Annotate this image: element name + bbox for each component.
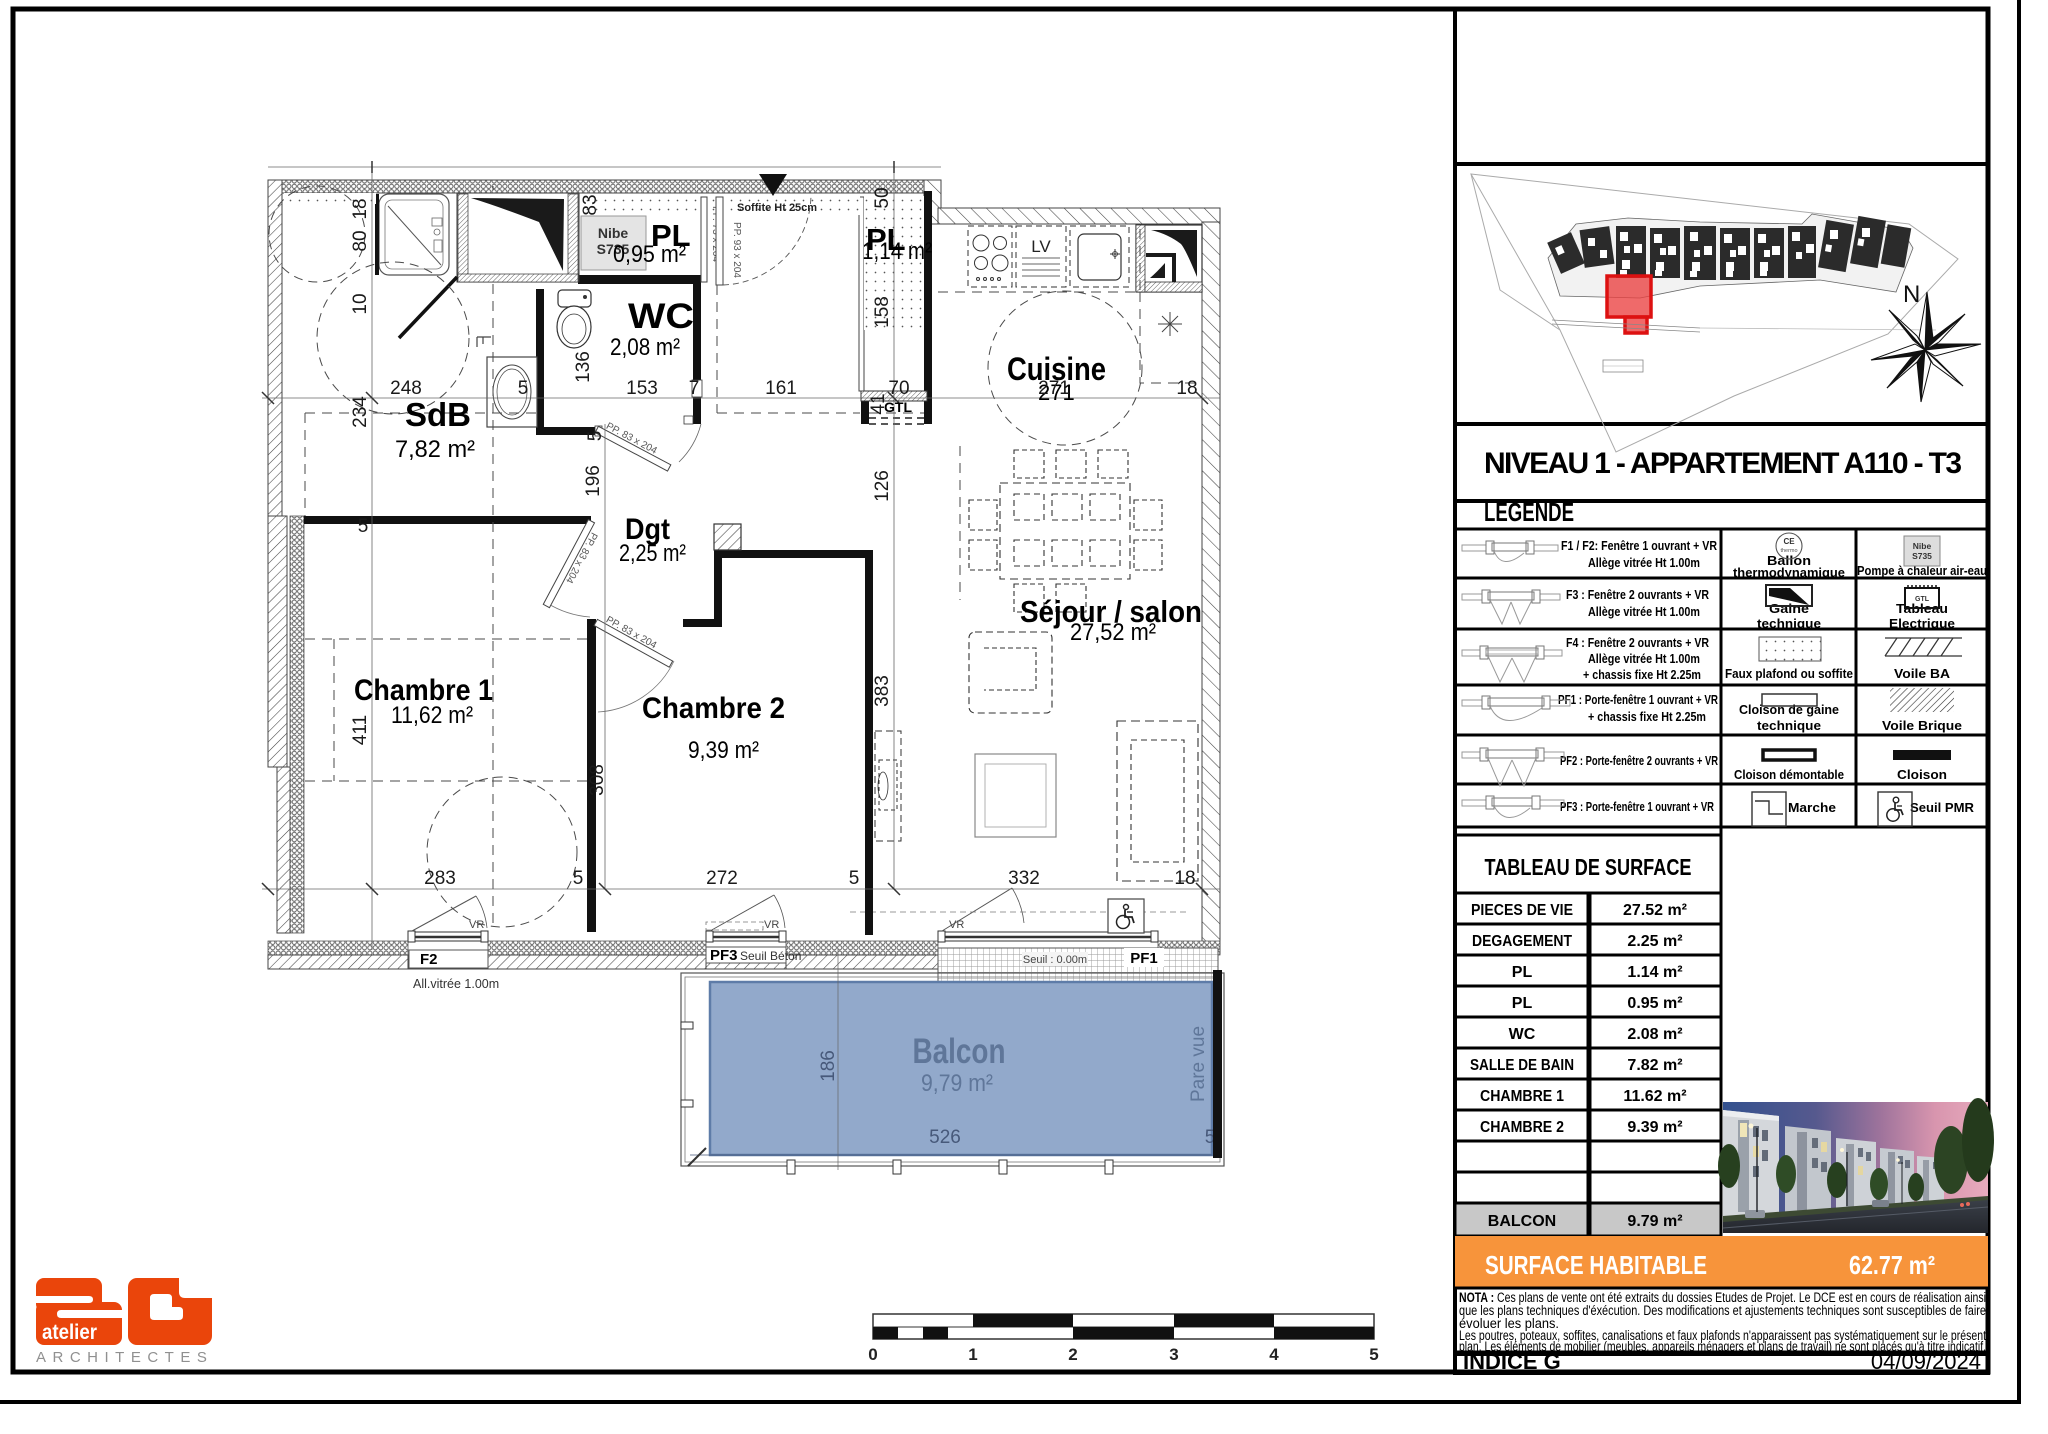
svg-text:Allège vitrée Ht 1.00m: Allège vitrée Ht 1.00m [1588,555,1700,570]
svg-text:62.77 m²: 62.77 m² [1849,1250,1935,1280]
svg-text:PF1: PF1 [1130,950,1158,967]
svg-text:2,25 m²: 2,25 m² [619,540,686,567]
svg-text:Nibe: Nibe [1913,541,1932,551]
svg-text:Voile Brique: Voile Brique [1882,718,1962,733]
svg-text:5: 5 [849,868,860,889]
svg-text:7.82 m²: 7.82 m² [1627,1057,1682,1074]
svg-text:Chambre 2: Chambre 2 [642,692,785,725]
svg-text:F1 / F2: Fenêtre 1 ouvrant + V: F1 / F2: Fenêtre 1 ouvrant + VR [1561,538,1717,553]
svg-text:Allège vitrée Ht 1.00m: Allège vitrée Ht 1.00m [1588,651,1700,666]
svg-text:18: 18 [350,198,371,219]
svg-text:83: 83 [580,194,601,215]
svg-text:2,08 m²: 2,08 m² [610,334,680,361]
svg-text:LV: LV [1031,237,1051,256]
svg-text:PIECES DE VIE: PIECES DE VIE [1471,902,1573,919]
svg-text:Voile BA: Voile BA [1894,666,1951,681]
svg-text:SURFACE HABITABLE: SURFACE HABITABLE [1485,1250,1707,1280]
svg-text:atelier: atelier [42,1321,97,1344]
svg-text:5: 5 [573,868,584,889]
svg-text:272: 272 [706,868,738,889]
svg-text:PL: PL [1512,964,1533,981]
svg-text:234: 234 [350,396,371,428]
svg-text:technique: technique [1757,616,1821,631]
svg-text:PF1 : Porte-fenêtre 1 ouvrant: PF1 : Porte-fenêtre 1 ouvrant + VR [1558,692,1718,707]
svg-text:411: 411 [350,715,371,745]
svg-text:PF3: PF3 [710,947,738,964]
svg-text:Allège vitrée Ht 1.00m: Allège vitrée Ht 1.00m [1588,604,1700,619]
svg-text:Pare vue: Pare vue [1188,1026,1209,1102]
svg-text:18: 18 [1174,868,1195,889]
svg-text:5: 5 [358,516,369,537]
svg-text:1: 1 [968,1345,977,1364]
svg-text:5: 5 [585,431,606,442]
svg-text:80: 80 [350,230,371,251]
svg-text:PF3 : Porte-fenêtre 1 ouvrant: PF3 : Porte-fenêtre 1 ouvrant + VR [1560,799,1714,814]
svg-text:50: 50 [872,187,893,208]
svg-text:GTL: GTL [1915,596,1930,603]
svg-text:526: 526 [929,1127,961,1148]
svg-text:383: 383 [872,675,893,707]
svg-text:Cloison de gaine: Cloison de gaine [1739,702,1839,717]
svg-text:1,14 m²: 1,14 m² [862,238,932,265]
svg-text:136: 136 [573,351,594,383]
svg-text:CE: CE [1783,537,1795,546]
svg-text:7,82 m²: 7,82 m² [395,436,475,463]
svg-text:0.95 m²: 0.95 m² [1627,995,1682,1012]
svg-text:VR: VR [469,919,484,931]
svg-text:VR: VR [764,919,779,931]
svg-text:283: 283 [424,868,456,889]
svg-text:Cloison démontable: Cloison démontable [1734,767,1844,782]
svg-text:2.08 m²: 2.08 m² [1627,1026,1682,1043]
svg-text:PF2 : Porte-fenêtre 2 ouvrants: PF2 : Porte-fenêtre 2 ouvrants + VR [1560,753,1718,768]
svg-text:TABLEAU DE SURFACE: TABLEAU DE SURFACE [1485,854,1692,880]
svg-text:41: 41 [868,393,889,414]
svg-text:N: N [1903,281,1920,308]
svg-text:DEGAGEMENT: DEGAGEMENT [1472,933,1572,950]
svg-text:196: 196 [583,465,604,497]
svg-text:SALLE DE BAIN: SALLE DE BAIN [1470,1057,1574,1074]
svg-text:248: 248 [390,378,422,399]
svg-text:0: 0 [868,1345,877,1364]
svg-text:186: 186 [818,1050,839,1082]
svg-text:9,79 m²: 9,79 m² [921,1070,993,1097]
svg-text:5: 5 [1369,1345,1378,1364]
svg-text:9,39 m²: 9,39 m² [688,737,759,764]
svg-text:9.79 m²: 9.79 m² [1627,1213,1682,1230]
svg-text:27.52 m²: 27.52 m² [1623,902,1687,919]
svg-text:04/09/2024: 04/09/2024 [1871,1349,1981,1374]
svg-text:technique: technique [1757,718,1821,733]
svg-text:Balcon: Balcon [913,1032,1006,1071]
svg-text:PP. 93 x 204: PP. 93 x 204 [731,222,742,278]
svg-text:Seuil Béton: Seuil Béton [740,949,801,963]
svg-text:Seuil PMR: Seuil PMR [1910,800,1975,815]
svg-text:18: 18 [1176,378,1197,399]
svg-text:1.14 m²: 1.14 m² [1627,964,1682,981]
svg-text:70: 70 [888,378,909,399]
svg-text:3: 3 [1169,1345,1178,1364]
svg-text:2.25 m²: 2.25 m² [1627,933,1682,950]
svg-text:NIVEAU 1 - APPARTEMENT A110 -: NIVEAU 1 - APPARTEMENT A110 - T3 [1484,447,1962,480]
svg-text:Marche: Marche [1788,800,1836,815]
svg-text:All.vitrée 1.00m: All.vitrée 1.00m [413,977,499,991]
svg-text:161: 161 [765,378,797,399]
svg-text:ARCHITECTES: ARCHITECTES [36,1349,213,1366]
svg-text:271: 271 [1038,378,1070,399]
svg-text:11,62 m²: 11,62 m² [391,702,473,729]
svg-text:thermodynamique: thermodynamique [1733,565,1845,580]
svg-text:F4 : Fenêtre 2 ouvrants + VR: F4 : Fenêtre 2 ouvrants + VR [1566,635,1709,650]
svg-text:BALCON: BALCON [1488,1213,1556,1230]
svg-text:WC: WC [628,297,694,336]
svg-text:F3 : Fenêtre 2 ouvrants + VR: F3 : Fenêtre 2 ouvrants + VR [1566,587,1709,602]
svg-text:7: 7 [689,378,700,399]
svg-text:Nibe: Nibe [598,225,629,241]
svg-text:4: 4 [1269,1345,1279,1364]
svg-text:F2: F2 [420,951,438,968]
svg-text:Cloison: Cloison [1897,767,1947,782]
svg-text:332: 332 [1008,868,1040,889]
svg-text:10: 10 [350,293,371,314]
svg-text:VR: VR [949,919,964,931]
svg-text:Electrique: Electrique [1889,616,1955,631]
svg-text:5: 5 [518,378,529,399]
svg-text:PL: PL [1512,995,1533,1012]
svg-text:+ chassis fixe Ht 2.25m: + chassis fixe Ht 2.25m [1588,709,1706,724]
svg-text:Soffite Ht 25cm: Soffite Ht 25cm [737,202,817,214]
svg-text:Seuil : 0.00m: Seuil : 0.00m [1023,954,1087,966]
svg-text:308: 308 [587,764,608,796]
svg-text:LEGENDE: LEGENDE [1484,497,1574,527]
svg-text:11.62 m²: 11.62 m² [1623,1088,1686,1105]
svg-text:INDICE G: INDICE G [1463,1349,1561,1374]
svg-text:2: 2 [1068,1345,1077,1364]
svg-text:Faux plafond ou soffite: Faux plafond ou soffite [1725,666,1853,681]
svg-text:WC: WC [1509,1026,1536,1043]
svg-text:0,95 m²: 0,95 m² [613,241,686,268]
svg-text:CHAMBRE 2: CHAMBRE 2 [1480,1119,1564,1136]
svg-text:9.39 m²: 9.39 m² [1627,1119,1682,1136]
svg-text:158: 158 [872,296,893,328]
svg-text:CHAMBRE 1: CHAMBRE 1 [1480,1088,1564,1105]
svg-text:S735: S735 [1912,551,1932,561]
svg-text:153: 153 [626,378,658,399]
svg-text:+ chassis fixe Ht 2.25m: + chassis fixe Ht 2.25m [1583,667,1701,682]
svg-text:126: 126 [872,470,893,502]
svg-text:SdB: SdB [405,396,471,433]
svg-text:27,52 m²: 27,52 m² [1070,619,1156,646]
svg-text:thermo: thermo [1780,548,1797,554]
